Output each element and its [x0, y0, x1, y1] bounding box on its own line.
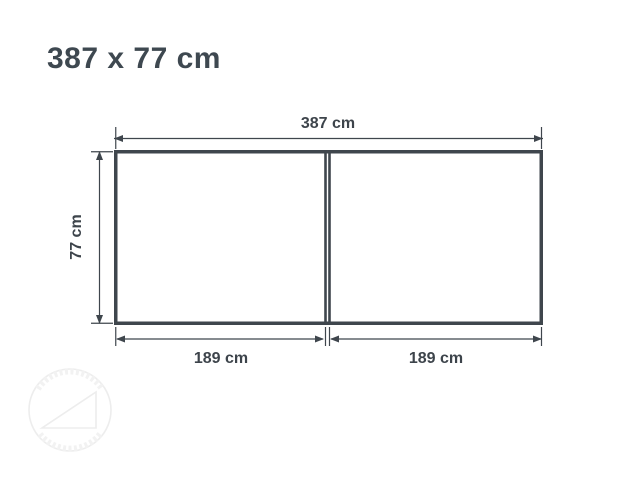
extension-lines — [91, 127, 542, 346]
section-left-dimension-line — [116, 336, 324, 343]
page: 387 x 77 cm — [0, 0, 639, 479]
section-right-dimension-line — [330, 336, 542, 343]
width-dimension-label: 387 cm — [301, 115, 355, 133]
arrow-right-icon — [315, 336, 324, 343]
width-dimension-line — [114, 135, 543, 142]
watermark-stamp-icon — [29, 369, 111, 451]
arrow-left-icon — [330, 336, 339, 343]
arrow-left-icon — [116, 336, 125, 343]
arrow-right-icon — [533, 336, 542, 343]
section-left-dimension-label: 189 cm — [194, 350, 248, 368]
watermark-top-text-arc — [38, 371, 102, 389]
height-dimension-line — [96, 151, 103, 324]
panel-divider — [326, 152, 330, 323]
watermark-bottom-text-arc — [40, 434, 100, 449]
height-dimension-label: 77 cm — [68, 214, 86, 259]
watermark-triangle-icon — [42, 392, 96, 428]
arrow-up-icon — [96, 151, 103, 160]
section-right-dimension-label: 189 cm — [409, 350, 463, 368]
dimension-diagram — [0, 0, 639, 479]
